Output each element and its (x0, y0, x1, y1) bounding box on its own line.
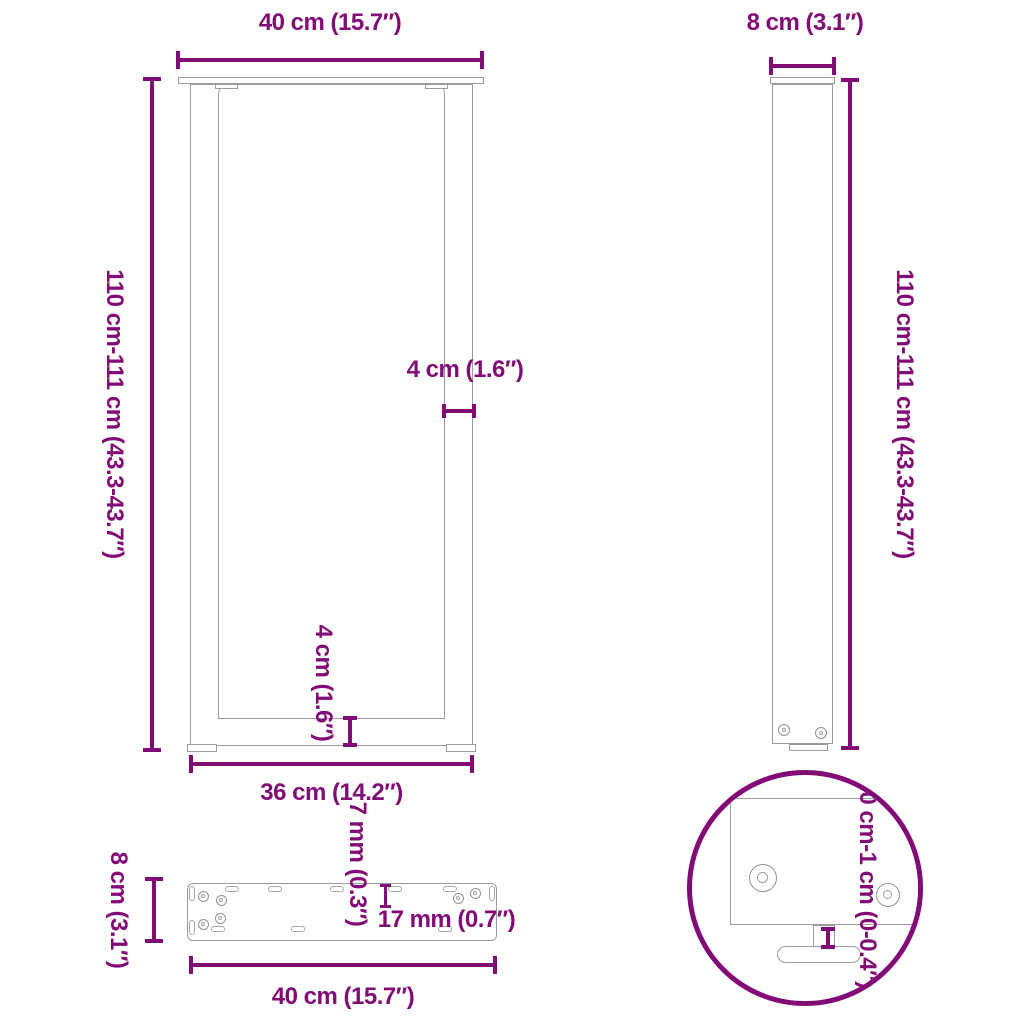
front-foot-left (187, 744, 217, 752)
front-crossbar-thickness-dim-line (348, 716, 352, 747)
front-foot-right (446, 744, 476, 752)
front-height-label: 110 cm-111 cm (43.3-43.7″) (99, 214, 129, 614)
side-screw-hole (815, 727, 827, 739)
screw-hole (198, 891, 209, 902)
side-height-label: 110 cm-111 cm (43.3-43.7″) (889, 214, 919, 614)
side-height-dim-line (848, 78, 852, 750)
front-width-label: 40 cm (15.7″) (176, 8, 484, 38)
side-screw-hole (778, 724, 790, 736)
mounting-slot (291, 926, 305, 932)
detail-leg-corner (730, 798, 923, 925)
front-leg-thickness-label: 4 cm (1.6″) (398, 355, 532, 385)
front-mount-tab-right (425, 84, 448, 89)
side-leg-body (772, 84, 833, 744)
front-crossbar-thickness-label: 4 cm (1.6″) (308, 583, 338, 783)
side-depth-label: 8 cm (3.1″) (740, 8, 870, 38)
front-inner-width-label: 36 cm (14.2″) (189, 778, 474, 808)
screw-hole (215, 913, 226, 924)
front-top-plate (178, 77, 484, 84)
screw-hole (216, 895, 227, 906)
top-slot-offset-label: 7 mm (0.3″) (342, 764, 372, 964)
mounting-slot (189, 920, 195, 935)
top-width-label: 40 cm (15.7″) (189, 982, 497, 1012)
detail-screw-hole (749, 864, 777, 892)
front-height-dim-line (150, 77, 154, 752)
front-mount-tab-left (215, 84, 238, 89)
detail-view-circle: 0 cm-1 cm (0-0.4″) (687, 770, 923, 1006)
mounting-slot (189, 886, 195, 901)
front-width-dim-line (176, 58, 484, 62)
dimension-diagram: 40 cm (15.7″) 110 cm-111 cm (43.3-43.7″)… (0, 0, 1024, 1024)
screw-hole (470, 888, 481, 899)
side-depth-dim-line (769, 64, 836, 68)
side-top-plate (770, 77, 835, 84)
detail-foot-pad (777, 946, 861, 963)
mounting-slot (489, 886, 495, 901)
mounting-slot (443, 886, 457, 892)
screw-hole (453, 893, 464, 904)
top-depth-dim-line (152, 877, 156, 943)
detail-adjust-dim-line (826, 927, 830, 949)
top-depth-label: 8 cm (3.1″) (103, 810, 133, 1010)
detail-adjust-label: 0 cm-1 cm (0-0.4″) (852, 770, 882, 1006)
mounting-slot (225, 886, 239, 892)
side-foot-plate (789, 744, 828, 751)
top-slot-length-label: 17 mm (0.7″) (374, 905, 519, 935)
mounting-slot (211, 926, 225, 932)
front-leg-thickness-dim-line (442, 409, 476, 413)
screw-hole (198, 919, 209, 930)
mounting-slot (268, 886, 282, 892)
